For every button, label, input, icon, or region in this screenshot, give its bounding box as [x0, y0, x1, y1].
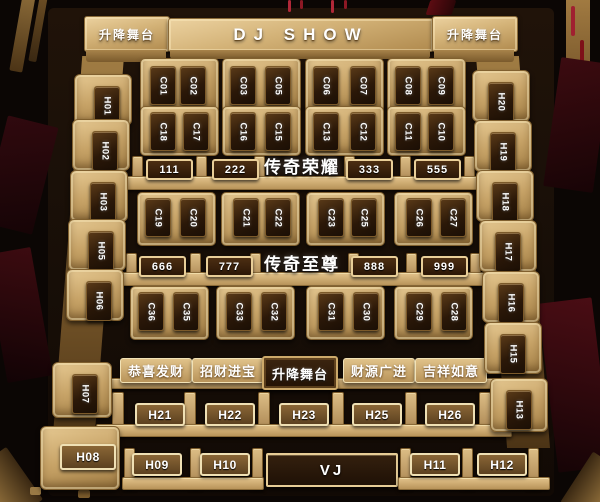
- table-c25[interactable]: C25: [351, 198, 377, 237]
- table-h22[interactable]: H22: [205, 403, 255, 426]
- floor-marker: [78, 490, 90, 498]
- table-c18[interactable]: C18: [150, 112, 176, 151]
- floor-marker: [30, 487, 41, 495]
- lift-stage-left: 升降舞台: [84, 16, 170, 52]
- table-888[interactable]: 888: [351, 256, 398, 277]
- center-lift-stage: 升降舞台: [262, 356, 338, 390]
- table-h11[interactable]: H11: [410, 453, 460, 476]
- table-h16[interactable]: H16: [498, 283, 524, 323]
- table-h15[interactable]: H15: [500, 334, 526, 374]
- table-c01[interactable]: C01: [150, 66, 176, 105]
- table-c22[interactable]: C22: [265, 198, 291, 237]
- reflection-red: [300, 0, 303, 9]
- table-333[interactable]: 333: [346, 159, 393, 180]
- table-777[interactable]: 777: [206, 256, 253, 277]
- table-c17[interactable]: C17: [183, 112, 209, 151]
- table-c16[interactable]: C16: [230, 112, 256, 151]
- reflection-red: [331, 0, 334, 13]
- reflection-red: [344, 0, 347, 9]
- bottom-bench-right: [398, 477, 550, 490]
- table-h21[interactable]: H21: [135, 403, 185, 426]
- reflection-red: [571, 6, 575, 36]
- table-c07[interactable]: C07: [350, 66, 376, 105]
- table-vj[interactable]: VJ: [266, 453, 398, 487]
- table-c36[interactable]: C36: [138, 292, 164, 331]
- table-c06[interactable]: C06: [313, 66, 339, 105]
- table-h08[interactable]: H08: [60, 444, 116, 470]
- dj-stage: DJ SHOW: [168, 18, 434, 52]
- lift-stage-right-label: 升降舞台: [433, 17, 517, 51]
- table-c21[interactable]: C21: [233, 198, 259, 237]
- table-c11[interactable]: C11: [395, 112, 421, 151]
- table-c08[interactable]: C08: [395, 66, 421, 105]
- reflection-shard: [0, 247, 53, 383]
- reflection-red: [288, 0, 291, 12]
- table-h06[interactable]: H06: [86, 281, 112, 321]
- table-c19[interactable]: C19: [145, 198, 171, 237]
- table-c12[interactable]: C12: [350, 112, 376, 151]
- table-h05[interactable]: H05: [88, 231, 114, 271]
- table-h17[interactable]: H17: [495, 232, 521, 272]
- table-c09[interactable]: C09: [428, 66, 454, 105]
- table-h12[interactable]: H12: [477, 453, 527, 476]
- table-c31[interactable]: C31: [318, 292, 344, 331]
- lift-stage-right: 升降舞台: [432, 16, 518, 52]
- club-seating-map: 升降舞台 DJ SHOW 升降舞台 C01 C02 C03 C05 C06 C0…: [0, 0, 600, 502]
- table-555[interactable]: 555: [414, 159, 461, 180]
- lift-stage-left-label: 升降舞台: [85, 17, 169, 51]
- table-h02[interactable]: H02: [92, 131, 118, 171]
- reflection-red: [426, 0, 457, 15]
- table-h19[interactable]: H19: [490, 132, 516, 172]
- table-c02[interactable]: C02: [180, 66, 206, 105]
- plate-caiyuanguangjin: 财源广进: [343, 358, 415, 383]
- table-h07[interactable]: H07: [72, 374, 98, 414]
- plate-zhaocaijinbao: 招财进宝: [192, 358, 264, 383]
- section-name-legend-glory: 传奇荣耀: [264, 153, 340, 178]
- table-c27[interactable]: C27: [440, 198, 466, 237]
- table-h10[interactable]: H10: [200, 453, 250, 476]
- table-c35[interactable]: C35: [173, 292, 199, 331]
- table-c28[interactable]: C28: [441, 292, 467, 331]
- table-c32[interactable]: C32: [261, 292, 287, 331]
- table-c33[interactable]: C33: [226, 292, 252, 331]
- table-h03[interactable]: H03: [90, 182, 116, 222]
- table-c20[interactable]: C20: [180, 198, 206, 237]
- table-c03[interactable]: C03: [230, 66, 256, 105]
- bottom-bench-left: [122, 477, 264, 490]
- table-c15[interactable]: C15: [265, 112, 291, 151]
- table-c29[interactable]: C29: [406, 292, 432, 331]
- table-c13[interactable]: C13: [313, 112, 339, 151]
- table-222[interactable]: 222: [212, 159, 259, 180]
- table-999[interactable]: 999: [421, 256, 468, 277]
- table-111[interactable]: 111: [146, 159, 193, 180]
- plate-gongxifacai: 恭喜发财: [120, 358, 192, 383]
- section-name-legend-supreme: 传奇至尊: [264, 250, 340, 275]
- table-c26[interactable]: C26: [406, 198, 432, 237]
- table-h26[interactable]: H26: [425, 403, 475, 426]
- table-666[interactable]: 666: [139, 256, 186, 277]
- dj-stage-label: DJ SHOW: [169, 19, 433, 51]
- table-h25[interactable]: H25: [352, 403, 402, 426]
- table-c23[interactable]: C23: [318, 198, 344, 237]
- table-h13[interactable]: H13: [506, 390, 532, 430]
- table-c10[interactable]: C10: [428, 112, 454, 151]
- table-h09[interactable]: H09: [132, 453, 182, 476]
- table-h20[interactable]: H20: [488, 82, 514, 122]
- plate-jixiangruyi: 吉祥如意: [415, 358, 487, 383]
- table-h23[interactable]: H23: [279, 403, 329, 426]
- table-h18[interactable]: H18: [492, 182, 518, 222]
- table-c30[interactable]: C30: [353, 292, 379, 331]
- table-c05[interactable]: C05: [265, 66, 291, 105]
